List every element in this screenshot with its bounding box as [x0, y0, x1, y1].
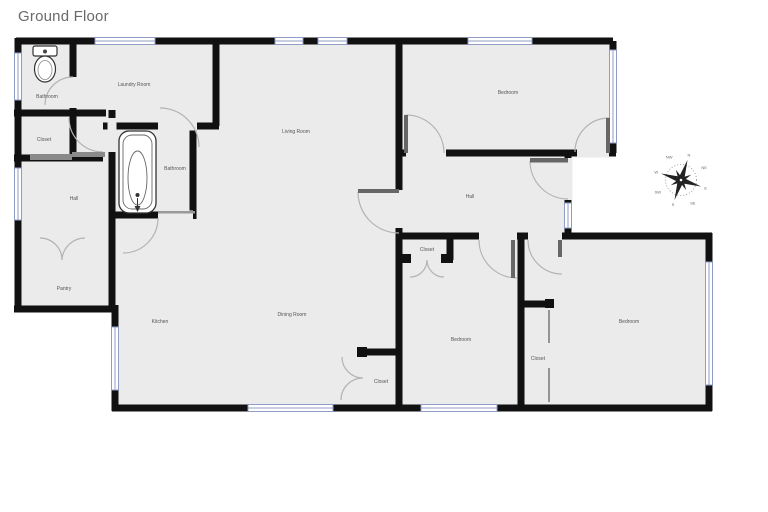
room-label-pantry: Pantry — [57, 286, 72, 292]
window — [248, 405, 333, 412]
window — [421, 405, 497, 412]
room-label-closet-dining: Closet — [374, 379, 389, 385]
window — [610, 50, 617, 143]
window — [112, 327, 119, 390]
room-label-closet-hall: Closet — [420, 247, 435, 253]
room-label-living-room: Living Room — [282, 129, 310, 135]
window — [15, 168, 22, 220]
floorplan-page: Ground Floor — [0, 0, 768, 512]
compass-nw: NW — [666, 154, 673, 159]
room-label-bathroom-upper: Bathroom — [36, 94, 58, 100]
page-title: Ground Floor — [18, 8, 109, 25]
compass-n: N — [688, 152, 691, 157]
room-label-bedroom-ne: Bedroom — [498, 90, 518, 96]
room-label-closet-se: Closet — [531, 356, 546, 362]
compass-sw: SW — [655, 189, 662, 194]
window — [275, 38, 303, 45]
window — [706, 262, 713, 385]
floorplan-canvas: Bathroom Laundry Room Closet Hall Bathro… — [0, 0, 768, 512]
window — [95, 38, 155, 45]
room-label-hall-left: Hall — [70, 196, 79, 202]
compass-s: S — [672, 202, 675, 207]
room-label-hall-right: Hall — [466, 194, 475, 200]
room-label-kitchen: Kitchen — [152, 319, 169, 325]
room-label-dining-room: Dining Room — [278, 312, 307, 318]
compass-e: E — [704, 186, 707, 191]
room-label-laundry: Laundry Room — [118, 82, 151, 88]
room-label-bedroom-se: Bedroom — [619, 319, 639, 325]
room-label-closet-upper: Closet — [37, 137, 52, 143]
bathtub-icon — [119, 131, 156, 213]
window — [15, 53, 22, 100]
room-label-bathroom-main: Bathroom — [164, 166, 186, 172]
compass-ne: NE — [701, 165, 707, 170]
window — [565, 203, 572, 228]
room-label-bedroom-south: Bedroom — [451, 337, 471, 343]
compass-rose-icon: N NE E SE S SW W NW — [654, 152, 707, 207]
compass-se: SE — [690, 201, 696, 206]
toilet-icon — [33, 46, 57, 82]
window — [318, 38, 347, 45]
window — [468, 38, 532, 45]
compass-w: W — [654, 170, 658, 175]
